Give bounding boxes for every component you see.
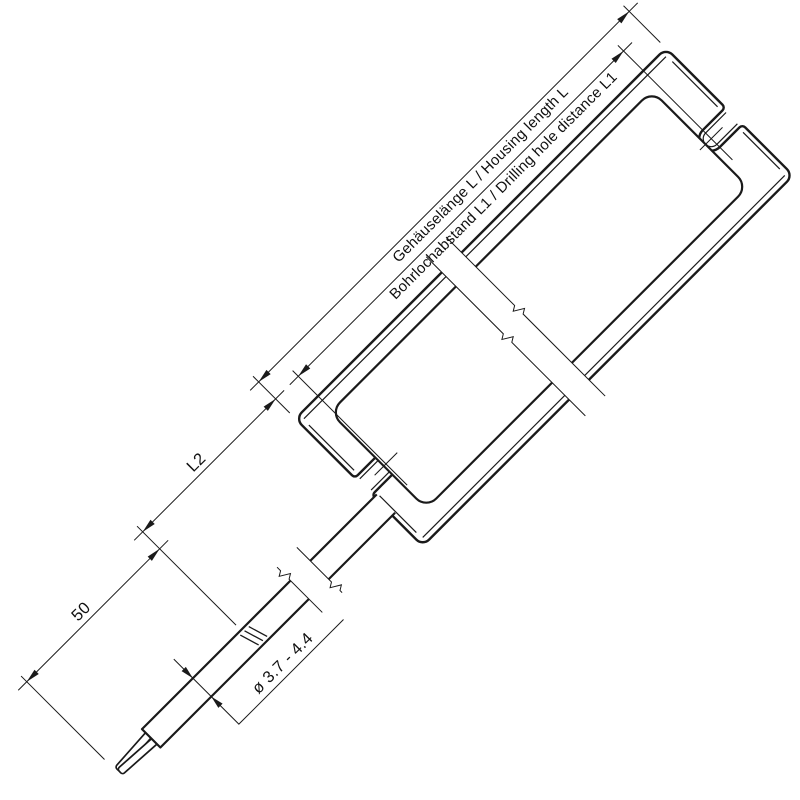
dimension-drawing: Gehäuselänge L / Housing length L Bohrlo… — [0, 0, 800, 800]
technical-drawing-page: Gehäuselänge L / Housing length L Bohrlo… — [0, 0, 800, 800]
